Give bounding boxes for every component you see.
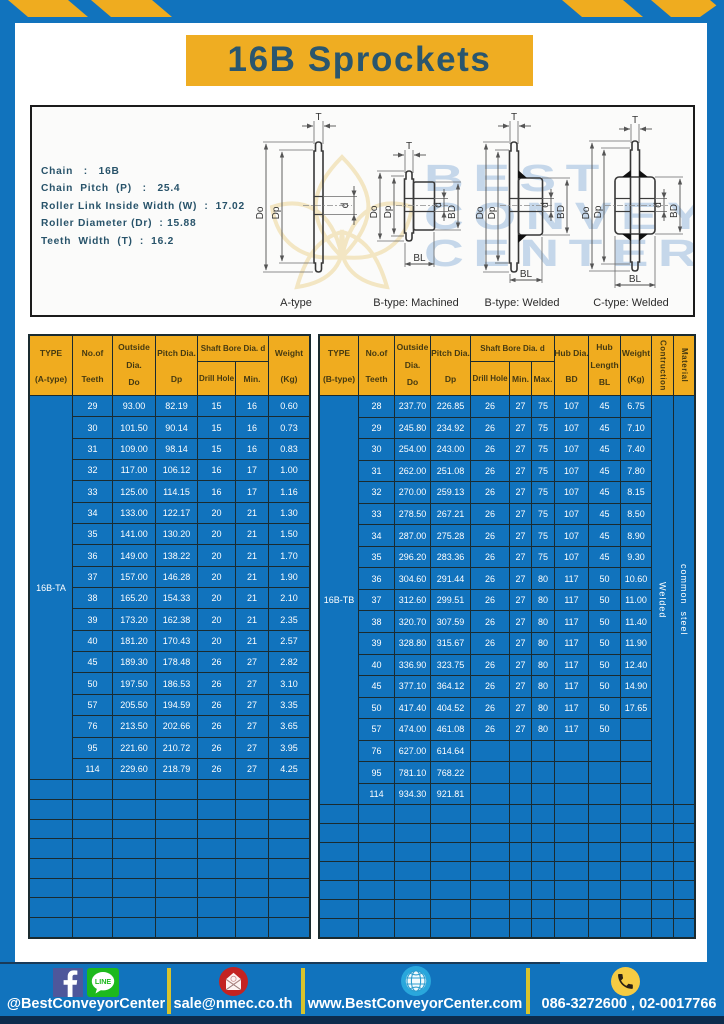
svg-text:BD: BD: [447, 205, 458, 219]
svg-text:Do: Do: [475, 206, 486, 219]
svg-text:BL: BL: [520, 269, 533, 280]
svg-text:d: d: [540, 202, 551, 208]
svg-text:LINE: LINE: [95, 977, 112, 986]
svg-text:Dp: Dp: [593, 205, 604, 218]
svg-text:Dp: Dp: [487, 206, 498, 219]
svg-text:d: d: [340, 203, 351, 209]
svg-text:T: T: [315, 112, 321, 123]
svg-text:T: T: [406, 141, 412, 152]
svg-text:Dp: Dp: [383, 205, 394, 218]
svg-text:T: T: [511, 112, 517, 123]
svg-text:BL: BL: [629, 274, 642, 285]
svg-text:d: d: [653, 202, 664, 208]
svg-text:T: T: [632, 115, 638, 126]
svg-text:Do: Do: [369, 205, 380, 218]
svg-text:BD: BD: [556, 205, 567, 219]
svg-text:Do: Do: [581, 206, 592, 219]
svg-text:BD: BD: [669, 204, 680, 218]
svg-text:BL: BL: [413, 253, 426, 264]
svg-text:d: d: [433, 202, 444, 208]
svg-text:Do: Do: [255, 206, 266, 219]
svg-text:Dp: Dp: [271, 206, 282, 219]
